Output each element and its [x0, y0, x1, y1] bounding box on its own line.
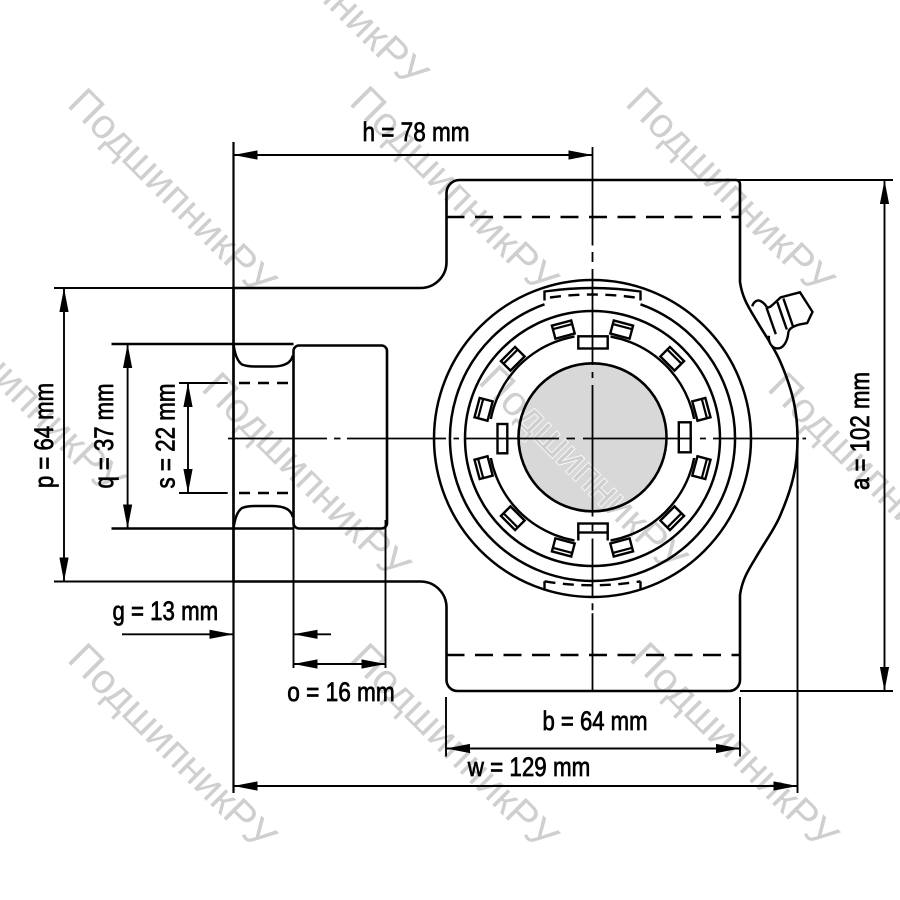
svg-text:a = 102 mm: a = 102 mm [845, 372, 875, 490]
svg-text:h = 78 mm: h = 78 mm [363, 117, 470, 147]
svg-text:w = 129 mm: w = 129 mm [467, 752, 590, 782]
svg-text:p = 64 mm: p = 64 mm [29, 383, 59, 488]
svg-text:b = 64 mm: b = 64 mm [543, 706, 648, 736]
svg-text:s = 22 mm: s = 22 mm [151, 384, 181, 489]
svg-text:o = 16 mm: o = 16 mm [287, 677, 395, 707]
svg-text:q = 37 mm: q = 37 mm [89, 384, 119, 489]
svg-text:g = 13 mm: g = 13 mm [113, 596, 219, 626]
